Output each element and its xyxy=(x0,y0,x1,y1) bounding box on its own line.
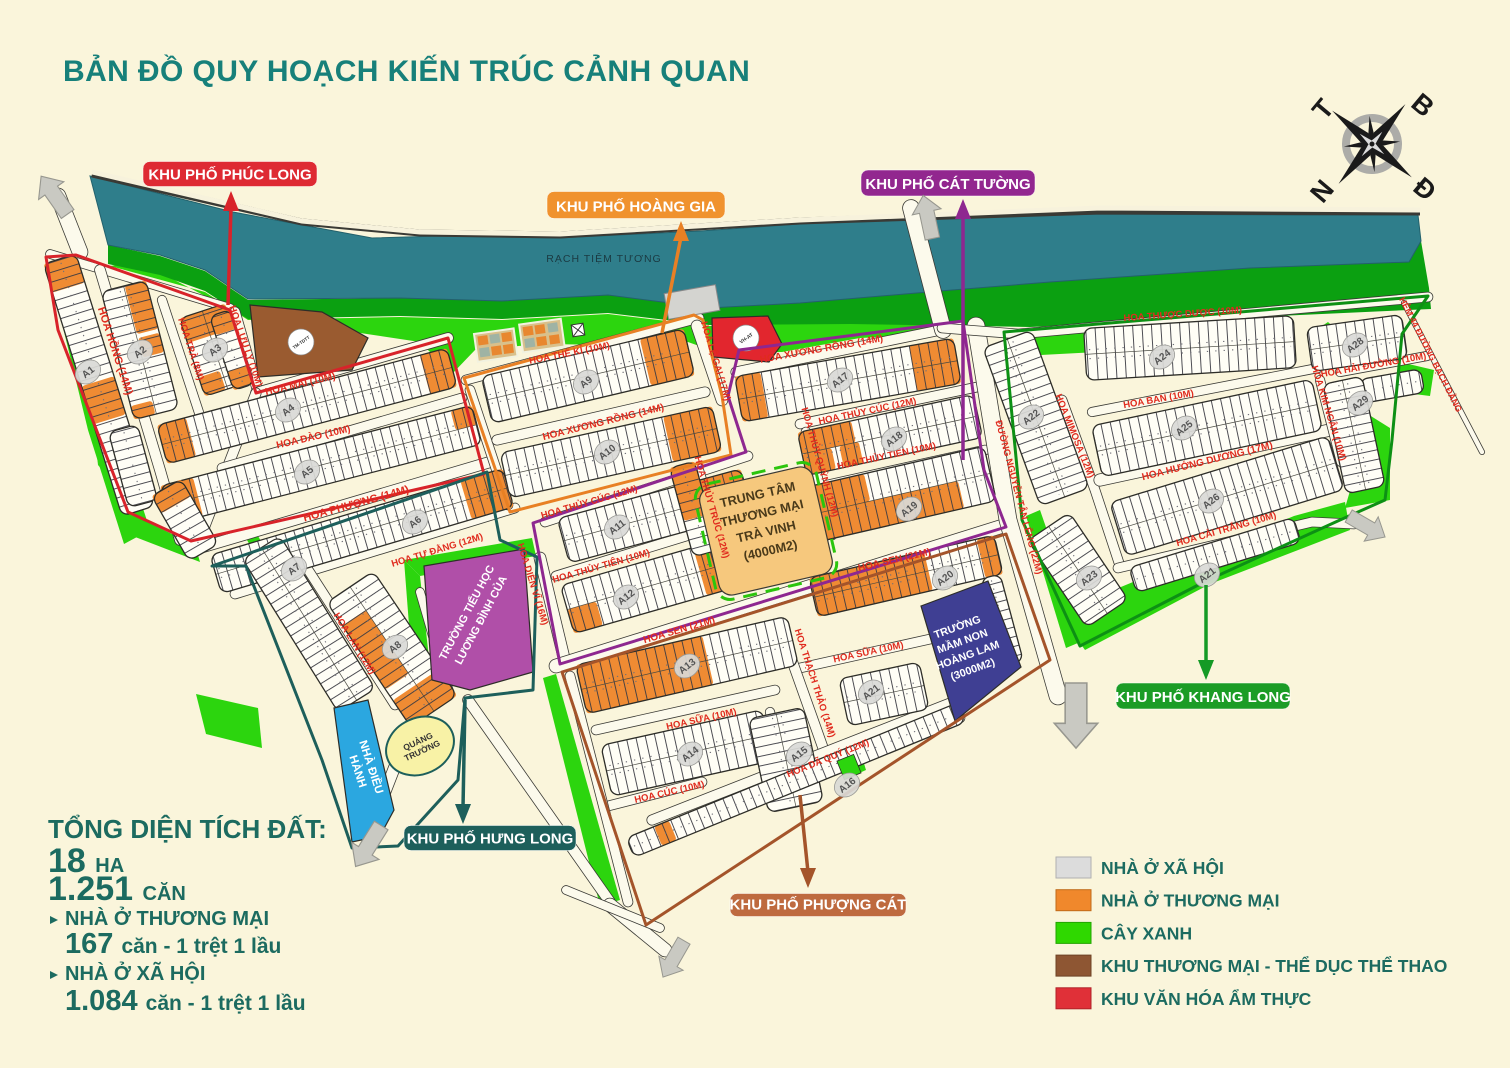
svg-text:NHÀ Ở XÃ HỘI: NHÀ Ở XÃ HỘI xyxy=(65,961,205,985)
svg-text:KHU PHỐ PHƯỢNG CÁT: KHU PHỐ PHƯỢNG CÁT xyxy=(730,896,907,914)
svg-text:KHU PHỐ PHÚC LONG: KHU PHỐ PHÚC LONG xyxy=(148,166,311,184)
svg-text:BẢN ĐỒ QUY HOẠCH KIẾN TRÚC CẢN: BẢN ĐỒ QUY HOẠCH KIẾN TRÚC CẢNH QUAN xyxy=(63,54,750,88)
svg-text:KHU THƯƠNG MẠI - THỂ DỤC THỂ T: KHU THƯƠNG MẠI - THỂ DỤC THỂ THAO xyxy=(1101,955,1447,976)
svg-text:NHÀ Ở THƯƠNG MẠI: NHÀ Ở THƯƠNG MẠI xyxy=(1101,890,1280,911)
svg-text:KHU PHỐ KHANG LONG: KHU PHỐ KHANG LONG xyxy=(1115,688,1291,706)
svg-text:KHU PHỐ HOÀNG GIA: KHU PHỐ HOÀNG GIA xyxy=(556,198,716,216)
svg-text:RẠCH TIỆM TƯƠNG: RẠCH TIỆM TƯƠNG xyxy=(546,252,661,265)
svg-text:KHU PHỐ HƯNG LONG: KHU PHỐ HƯNG LONG xyxy=(407,830,574,848)
svg-text:KHU VĂN HÓA ẨM THỰC: KHU VĂN HÓA ẨM THỰC xyxy=(1101,988,1312,1009)
svg-text:KHU PHỐ CÁT TƯỜNG: KHU PHỐ CÁT TƯỜNG xyxy=(865,175,1030,193)
svg-text:TỔNG DIỆN TÍCH ĐẤT:: TỔNG DIỆN TÍCH ĐẤT: xyxy=(48,814,327,844)
svg-text:CÂY XANH: CÂY XANH xyxy=(1101,922,1192,943)
svg-text:NHÀ Ở XÃ HỘI: NHÀ Ở XÃ HỘI xyxy=(1101,857,1224,878)
svg-text:NHÀ Ở THƯƠNG MẠI: NHÀ Ở THƯƠNG MẠI xyxy=(65,906,269,930)
